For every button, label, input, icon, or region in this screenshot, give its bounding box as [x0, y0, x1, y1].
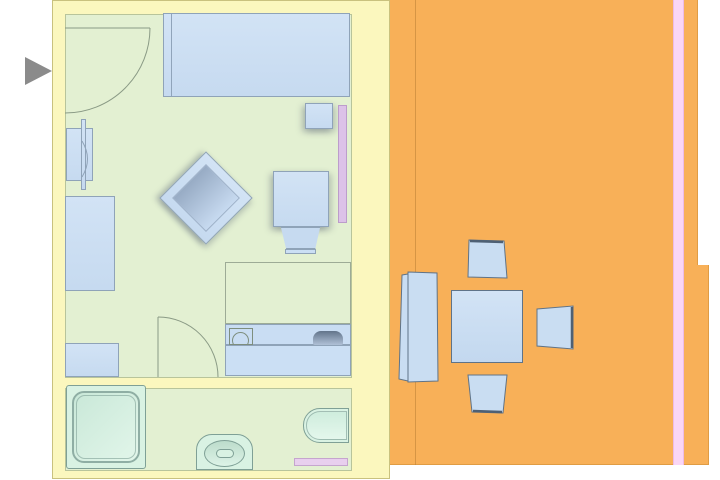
toilet-flush — [216, 449, 234, 458]
bath-mat-strip — [294, 458, 348, 466]
side-cabinet — [65, 343, 119, 377]
entrance-arrow-icon[interactable] — [25, 57, 52, 85]
bed-headboard-line — [171, 14, 172, 96]
dresser — [65, 196, 115, 291]
desk-phone — [313, 331, 343, 345]
armchair-base — [285, 249, 316, 254]
floor-plan-canvas — [0, 0, 720, 480]
terrace-door-strip — [673, 0, 684, 465]
desk-outline — [225, 262, 351, 324]
terrace-area-upper — [390, 0, 698, 265]
double-bed — [163, 13, 350, 97]
desk-counter — [225, 345, 351, 376]
nightstand — [305, 103, 333, 129]
room-door-strip — [338, 105, 347, 223]
wardrobe-sliding-panel — [81, 119, 86, 190]
wardrobe — [66, 128, 93, 181]
armchair-back — [280, 227, 321, 249]
terrace-area-lower — [390, 265, 709, 465]
armchair-seat — [273, 171, 329, 227]
terrace-table — [451, 290, 523, 363]
shower-tray-inner-line — [76, 395, 136, 459]
terrace-decking-line — [415, 0, 416, 465]
bathtub-inner-line — [306, 411, 347, 440]
